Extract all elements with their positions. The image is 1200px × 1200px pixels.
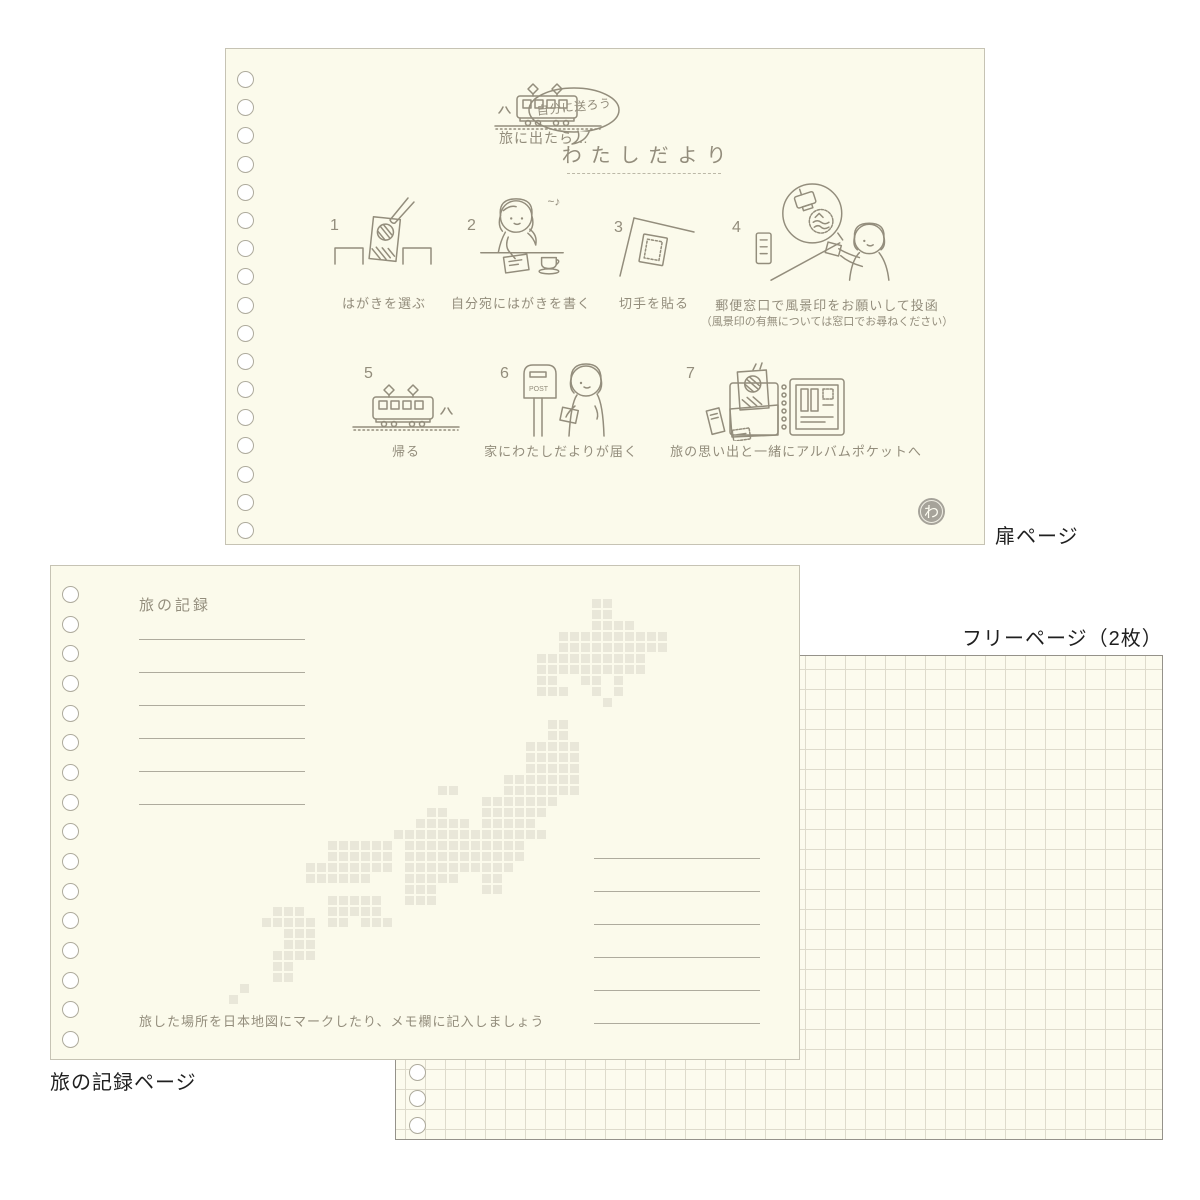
step-caption: 旅の思い出と一緒にアルバムポケットへ xyxy=(666,441,926,460)
label-free-page: フリーページ（2枚） xyxy=(962,622,1172,651)
japan-map xyxy=(229,599,669,1006)
step-number: 7 xyxy=(686,365,695,383)
writing-girl-icon: ~♪ xyxy=(464,192,579,290)
record-title: 旅の記録 xyxy=(139,594,211,615)
travel-record-sheet: 旅の記録 旅した場所を日本地図にマークしたり、メモ欄に記入しましょう xyxy=(50,565,800,1060)
wa-logo-icon: わ xyxy=(918,498,945,525)
title-underline xyxy=(567,173,721,174)
return-train-icon xyxy=(351,379,461,436)
binder-holes xyxy=(62,586,79,1048)
step-caption: 帰る xyxy=(366,441,446,460)
binder-holes xyxy=(237,71,254,539)
label-title-page: 扉ページ xyxy=(995,520,1079,549)
label-record-page: 旅の記録ページ xyxy=(50,1066,197,1095)
svg-text:~♪: ~♪ xyxy=(547,196,560,209)
step-caption: 自分宛にはがきを書く xyxy=(441,293,601,312)
svg-text:POST: POST xyxy=(529,386,549,393)
stamp-postcard-icon xyxy=(612,206,697,291)
step-caption: 郵便窓口で風景印をお願いして投函 xyxy=(707,295,947,314)
mailbox-icon: POST xyxy=(498,354,628,439)
title-page-sheet: 旅に出たら… 自分に送ろう わたしだより 1 は xyxy=(225,48,985,545)
step-caption: 切手を貼る xyxy=(599,293,709,312)
step-number: 4 xyxy=(732,219,741,237)
step-subcaption: （風景印の有無については窓口でお尋ねください） xyxy=(687,313,967,329)
main-title: わたしだより xyxy=(494,139,794,168)
step-caption: 家にわたしだよりが届く xyxy=(471,441,651,460)
post-office-icon xyxy=(742,182,912,290)
map-note: 旅した場所を日本地図にマークしたり、メモ欄に記入しましょう xyxy=(139,1011,544,1030)
step-caption: はがきを選ぶ xyxy=(304,293,464,312)
wa-logo-char: わ xyxy=(924,501,939,522)
album-pocket-icon xyxy=(704,359,889,441)
postcard-rack-icon xyxy=(329,196,444,291)
product-image: 旅の記録 旅した場所を日本地図にマークしたり、メモ欄に記入しましょう 旅に出たら… xyxy=(0,0,1200,1200)
